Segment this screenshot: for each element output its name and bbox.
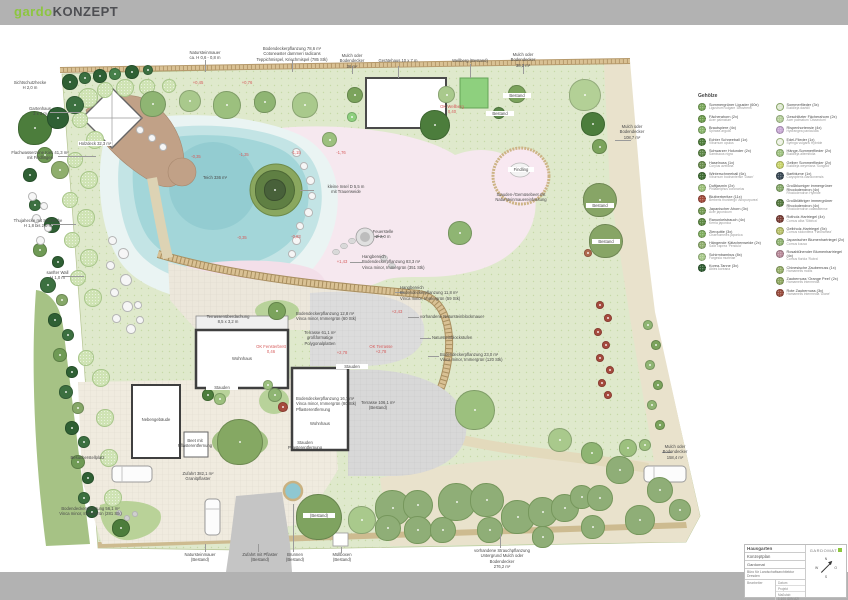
app-header: gardoKONZEPT bbox=[0, 0, 848, 25]
bottom-band bbox=[0, 572, 848, 600]
legend-item: Echter Schneeball (1x) Viburnum opulus bbox=[698, 138, 771, 146]
legend-item: Zaubernuss 'Orange Peel' (2x) Hamamelis … bbox=[776, 277, 848, 285]
editor-label: Bearbeiter bbox=[745, 580, 776, 600]
north-arrow: N O S W bbox=[815, 557, 837, 579]
plant-symbol-icon bbox=[776, 138, 784, 146]
plant-symbol-icon bbox=[698, 161, 706, 169]
plant-symbol-icon bbox=[698, 264, 706, 272]
plant-symbol-icon bbox=[776, 126, 784, 134]
plant-botanical-name: Buddleja davidii bbox=[787, 107, 819, 111]
plant-botanical-name: Corylus avellana bbox=[709, 165, 734, 169]
legend-item: Schirmbambus (8x) Fargesia murielae bbox=[698, 253, 771, 261]
well-pond bbox=[284, 482, 302, 500]
plant-botanical-name: Berberis thunbergii 'Atropurpurea' bbox=[709, 199, 758, 203]
plant-symbol-icon bbox=[776, 115, 784, 123]
plant-symbol-icon bbox=[698, 115, 706, 123]
legend-item: Gelber Sommerflieder (2x) Buddleja weyer… bbox=[776, 161, 848, 169]
plant-botanical-name: Hamamelis mollis bbox=[787, 270, 836, 274]
plant-symbol-icon bbox=[776, 227, 784, 235]
plant-botanical-name: Philadelphus coronarius bbox=[709, 188, 744, 192]
plant-botanical-name: Cornus stolonifera 'Flaviramea' bbox=[787, 231, 832, 235]
legend-item: Duftjasmin (2x) Philadelphus coronarius bbox=[698, 184, 771, 192]
plant-botanical-name: Buddleja alternifolia bbox=[787, 153, 832, 157]
plant-botanical-name: Chaenomeles japonica bbox=[709, 234, 743, 238]
legend-item: Rote Zaubernuss (3x) Hamamelis intermedi… bbox=[776, 289, 848, 297]
legend-item: Rotholz-Hartriegel (4x) Cornus alba 'Sib… bbox=[776, 215, 848, 223]
plant-botanical-name: Rhododendron catawbiense bbox=[787, 208, 848, 212]
legend-item: Brautspiere (4x) Spiraea arguta bbox=[698, 126, 771, 134]
plant-symbol-icon bbox=[698, 184, 706, 192]
office-name: Büro für Landschaftsarchitektur Dresden bbox=[745, 569, 805, 580]
plant-botanical-name: Cornus alba 'Sibirica' bbox=[787, 220, 825, 224]
legend-column-1: Sommergrüner Liguster (60x) Ligustrum vu… bbox=[698, 103, 771, 300]
plant-symbol-icon bbox=[698, 126, 706, 134]
plant-symbol-icon bbox=[776, 161, 784, 169]
plant-symbol-icon bbox=[776, 250, 784, 258]
plant-botanical-name: Viburnum opulus bbox=[709, 142, 747, 146]
plant-botanical-name: Caryopteris clandonensis bbox=[787, 176, 824, 180]
client-name: Gardomat bbox=[745, 561, 805, 569]
compass-north-label: N bbox=[825, 557, 827, 561]
plant-symbol-icon bbox=[776, 289, 784, 297]
plant-botanical-name: Hamamelis intermedia 'Diane' bbox=[787, 293, 831, 297]
plant-botanical-name: Ligustrum vulgare 'Atrovirens' bbox=[709, 107, 759, 111]
plant-botanical-name: Acer japonicum bbox=[709, 211, 748, 215]
legend-item: Winterschneeball (6x) Viburnum bodnanten… bbox=[698, 172, 771, 180]
plant-botanical-name: Acer palmatum bbox=[709, 119, 738, 123]
legend-item: Gelbholz-Hartriegel (5x) Cornus stolonif… bbox=[776, 227, 848, 235]
plant-symbol-icon bbox=[698, 195, 706, 203]
plant-botanical-name: Kerria japonica bbox=[709, 222, 745, 226]
plant-botanical-name: Buddleja weyeriana 'Sungold' bbox=[787, 165, 832, 169]
plant-symbol-icon bbox=[698, 138, 706, 146]
legend-item: Blutberberitze (11x) Berberis thunbergii… bbox=[698, 195, 771, 203]
legend-item: Großblättriger immergrüner Rhododendron … bbox=[776, 199, 848, 212]
plant-botanical-name: Syringa vulgaris Hybride bbox=[787, 142, 823, 146]
legend-item: Zierquitte (3x) Chaenomeles japonica bbox=[698, 230, 771, 238]
plant-symbol-icon bbox=[698, 241, 706, 249]
legend-item: Korea-Tanne (3x) Abies koreana bbox=[698, 264, 771, 272]
legend-item: Hänge-Sommerflieder (2x) Buddleja altern… bbox=[776, 149, 848, 157]
plant-symbol-icon bbox=[698, 172, 706, 180]
compass-south-label: S bbox=[825, 575, 827, 579]
legend-item: Bartblume (1x) Caryopteris clandonensis bbox=[776, 172, 848, 180]
plant-symbol-icon bbox=[776, 215, 784, 223]
legend-title: Gehölze bbox=[698, 93, 848, 99]
legend-column-2: Sommerflieder (3x) Buddleja davidii Gesc… bbox=[776, 103, 848, 300]
legend-item: Geschlitzter Fächerahorn (2x) Acer palma… bbox=[776, 115, 848, 123]
vegetable-bed-circle bbox=[493, 148, 549, 204]
legend-item: Sommerflieder (3x) Buddleja davidii bbox=[776, 103, 848, 111]
logo-green-square bbox=[838, 548, 842, 552]
plant-symbol-icon bbox=[698, 218, 706, 226]
brand-logo-dark: KONZEPT bbox=[53, 4, 119, 19]
plant-symbol-icon bbox=[698, 149, 706, 157]
plant-legend: Gehölze Sommergrüner Liguster (60x) Ligu… bbox=[698, 93, 848, 300]
legend-item: Hängende Kätzchenweide (2x) Salix caprea… bbox=[698, 241, 771, 249]
plant-botanical-name: Sambucus nigra bbox=[709, 153, 751, 157]
plant-botanical-name: Hydrangea paniculata bbox=[787, 130, 822, 134]
plant-botanical-name: Abies koreana bbox=[709, 268, 738, 272]
legend-item: Japanischer Blumenhartriegel (2x) Cornus… bbox=[776, 238, 848, 246]
project-title: Hausgarten bbox=[745, 545, 805, 553]
plant-symbol-icon bbox=[776, 172, 784, 180]
plant-symbol-icon bbox=[776, 103, 784, 111]
plant-botanical-name: Cornus florida 'Rubra' bbox=[787, 258, 848, 262]
plant-botanical-name: Fargesia murielae bbox=[709, 257, 742, 261]
plant-symbol-icon bbox=[776, 199, 784, 207]
plant-symbol-icon bbox=[698, 253, 706, 261]
legend-item: Schwarzer Holunder (2x) Sambucus nigra bbox=[698, 149, 771, 157]
plant-botanical-name: Viburnum bodnantense 'Dawn' bbox=[709, 176, 754, 180]
plant-botanical-name: Rhododendron Hybride bbox=[787, 192, 848, 196]
plant-botanical-name: Acer palmatum 'Dissectum' bbox=[787, 119, 837, 123]
legend-item: Rosablühender Blumenhartriegel (4x) Corn… bbox=[776, 250, 848, 263]
brand-logo: gardoKONZEPT bbox=[14, 4, 118, 19]
legend-item: Großblumiger immergrüner Rhododendron (4… bbox=[776, 184, 848, 197]
legend-item: Sommergrüner Liguster (60x) Ligustrum vu… bbox=[698, 103, 771, 111]
legend-item: Chinesische Zaubernuss (1x) Hamamelis mo… bbox=[776, 266, 848, 274]
gardomat-logo: GARDOMAT bbox=[810, 548, 843, 553]
plant-symbol-icon bbox=[776, 149, 784, 157]
legend-item: Edel-Flieder (1x) Syringa vulgaris Hybri… bbox=[776, 138, 848, 146]
plant-botanical-name: Hamamelis intermedia bbox=[787, 281, 838, 285]
legend-item: Japanischer Ahorn (3x) Acer japonicum bbox=[698, 207, 771, 215]
plant-symbol-icon bbox=[698, 103, 706, 111]
plan-type: Konzeptplan bbox=[745, 553, 805, 561]
plant-symbol-icon bbox=[776, 277, 784, 285]
plant-symbol-icon bbox=[698, 230, 706, 238]
scale-label: Maßstab 1:100 (DIN A2) bbox=[776, 592, 805, 600]
plant-botanical-name: Cornus kousa bbox=[787, 243, 845, 247]
plant-symbol-icon bbox=[698, 207, 706, 215]
plan-sheet: gardoKONZEPT bbox=[0, 0, 848, 600]
legend-item: Haselnuss (1x) Corylus avellana bbox=[698, 161, 771, 169]
plant-symbol-icon bbox=[776, 184, 784, 192]
title-block: Hausgarten Konzeptplan Gardomat Büro für… bbox=[744, 544, 847, 598]
brand-logo-green: gardo bbox=[14, 4, 53, 19]
plant-botanical-name: Salix caprea 'Pendula' bbox=[709, 245, 761, 249]
compass-needle bbox=[821, 563, 831, 573]
plant-symbol-icon bbox=[776, 266, 784, 274]
legend-item: Fächerahorn (2x) Acer palmatum bbox=[698, 115, 771, 123]
compass-east-label: O bbox=[834, 566, 837, 570]
compass-west-label: W bbox=[815, 566, 818, 570]
plant-botanical-name: Spiraea arguta bbox=[709, 130, 736, 134]
legend-item: Rispenhortensie (4x) Hydrangea paniculat… bbox=[776, 126, 848, 134]
legend-item: Ranunkelstrauch (4x) Kerria japonica bbox=[698, 218, 771, 226]
plant-symbol-icon bbox=[776, 238, 784, 246]
